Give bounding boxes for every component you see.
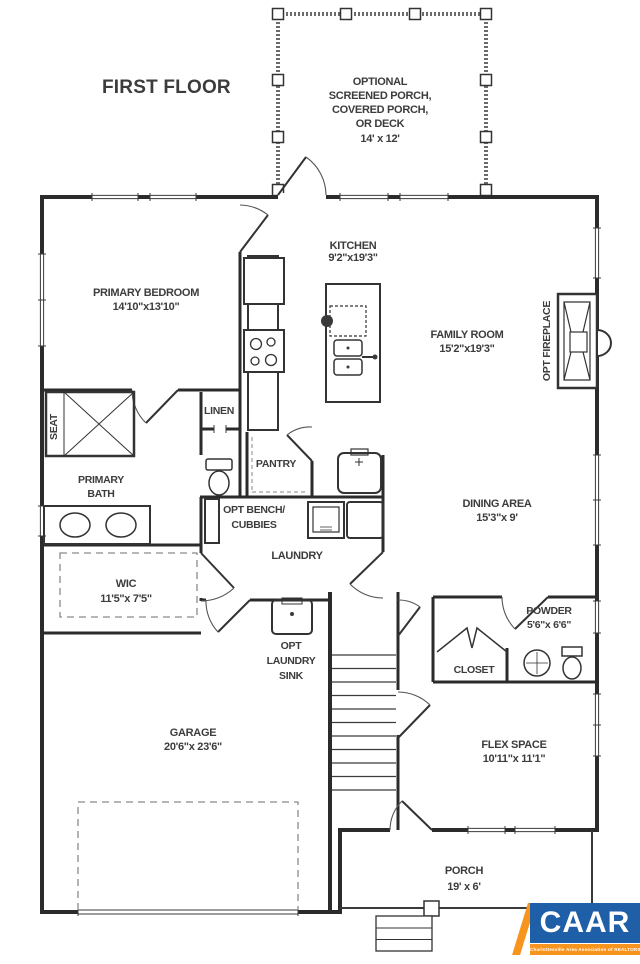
fireplace-chimney-bump	[597, 330, 611, 356]
opt-laundry-sink-fixture	[272, 600, 312, 634]
label-dining-area-dims: 15'3"x 9'	[476, 512, 518, 524]
stairs	[332, 655, 396, 790]
shower-glass	[64, 392, 134, 456]
label-optional-porch-2: SCREENED PORCH,	[329, 90, 432, 102]
powder-toilet-bowl	[563, 657, 581, 679]
label-family-room-dims: 15'2"x19'3"	[439, 343, 494, 355]
label-family-room: FAMILY ROOM	[430, 329, 503, 341]
washer-vents	[320, 527, 332, 530]
interior-openings	[132, 386, 548, 604]
label-primary-bedroom: PRIMARY BEDROOM	[93, 287, 199, 299]
caar-logo: CAAR Charlottesville Area Association of…	[516, 901, 640, 957]
caar-text: CAAR	[540, 906, 631, 939]
garage-door-dashed-outline	[78, 802, 298, 910]
label-wic-dims: 11'5"x 7'5"	[100, 593, 152, 605]
label-primary-bath-1: PRIMARY	[78, 474, 124, 486]
porch-screen-wall	[278, 14, 486, 192]
washer-door	[313, 507, 339, 532]
label-optional-porch-3: COVERED PORCH,	[332, 104, 428, 116]
dryer	[347, 502, 383, 538]
floor-plan-drawing: FIRST FLOOR OPTIONAL SCREENED PORCH, COV…	[0, 0, 640, 964]
caar-tagline: Charlottesville Area Association of REAL…	[530, 944, 640, 955]
cooktop	[244, 330, 284, 372]
label-powder: POWDER	[526, 605, 572, 617]
vanity-sink-2	[106, 513, 136, 537]
sink-drain-1	[347, 347, 350, 350]
powder-sink-detail	[526, 652, 548, 674]
porch-steps	[376, 916, 432, 951]
stair-treads	[332, 655, 396, 790]
label-opt-laundry-sink-1: OPT	[281, 640, 303, 652]
label-seat: SEAT	[48, 413, 60, 440]
utility-tub-drain	[355, 458, 363, 466]
label-garage-dims: 20'6"x 23'6"	[164, 741, 222, 753]
label-powder-dims: 5'6"x 6'6"	[527, 619, 571, 631]
label-primary-bedroom-dims: 14'10"x13'10"	[113, 301, 180, 313]
label-pantry: PANTRY	[256, 458, 296, 470]
label-primary-bath-2: BATH	[87, 488, 114, 500]
label-wic: WIC	[116, 578, 137, 590]
caar-wordmark: CAAR	[530, 903, 640, 943]
label-garage: GARAGE	[170, 727, 216, 739]
label-porch-dims: 19' x 6'	[447, 881, 481, 893]
label-kitchen: KITCHEN	[330, 240, 377, 252]
label-optional-porch-dims: 14' x 12'	[360, 133, 400, 145]
kitchen-fixtures	[244, 256, 380, 430]
powder-toilet-tank	[562, 647, 582, 656]
closet-bifold-door	[437, 628, 507, 652]
label-opt-laundry-sink-3: SINK	[279, 670, 304, 682]
optional-porch-structure	[273, 9, 492, 196]
label-kitchen-dims: 9'2"x19'3"	[328, 252, 377, 264]
label-opt-bench-1: OPT BENCH/	[223, 504, 285, 516]
page-title: FIRST FLOOR	[102, 77, 231, 98]
opt-sink-drain	[290, 612, 294, 616]
label-flex-space: FLEX SPACE	[481, 739, 546, 751]
bench-cubbies	[205, 499, 219, 543]
vanity-sink-1	[60, 513, 90, 537]
label-porch: PORCH	[445, 865, 484, 877]
island-knob	[321, 315, 333, 327]
bath-toilet-tank	[206, 459, 232, 470]
label-laundry: LAUNDRY	[271, 550, 323, 562]
label-linen: LINEN	[204, 405, 234, 417]
fireplace	[558, 294, 611, 388]
label-flex-space-dims: 10'11"x 11'1"	[483, 753, 546, 765]
porch-posts	[273, 9, 492, 196]
label-optional-porch-4: OR DECK	[356, 118, 405, 130]
sink-drain-2	[347, 366, 350, 369]
porch-post	[424, 901, 439, 916]
floor-plan: FIRST FLOOR OPTIONAL SCREENED PORCH, COV…	[0, 0, 640, 964]
label-closet: CLOSET	[454, 664, 496, 676]
label-optional-porch-1: OPTIONAL	[353, 76, 408, 88]
label-opt-fireplace: OPT FIREPLACE	[541, 301, 553, 381]
label-opt-bench-2: CUBBIES	[231, 519, 276, 531]
label-opt-laundry-sink-2: LAUNDRY	[267, 655, 316, 667]
bath-toilet-bowl	[209, 471, 229, 495]
laundry-fixtures	[205, 449, 383, 634]
label-dining-area: DINING AREA	[462, 498, 531, 510]
refrigerator	[244, 258, 284, 304]
sink-faucet-base	[373, 355, 378, 360]
